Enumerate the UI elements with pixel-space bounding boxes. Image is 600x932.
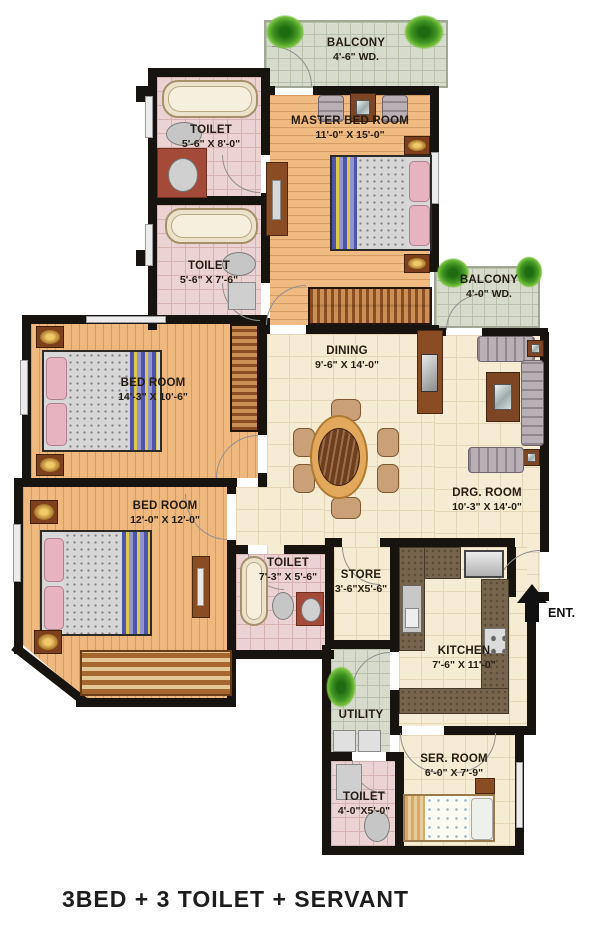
dining-table-top bbox=[318, 428, 360, 486]
dresser-mirror bbox=[272, 180, 281, 220]
nightstand bbox=[34, 630, 62, 654]
room-dims: 7'-3" X 5'-6" bbox=[246, 571, 330, 585]
room-dims: 3'-6"X5'-6" bbox=[328, 583, 394, 597]
room-name: BED ROOM bbox=[60, 376, 246, 391]
nightstand bbox=[36, 454, 64, 476]
bed-pillow bbox=[44, 586, 64, 630]
room-dims: 10'-3" X 14'-0" bbox=[432, 501, 542, 515]
room-dims: 9'-6" X 14'-0" bbox=[267, 359, 427, 373]
room-dims: 14'-3" X 10'-6" bbox=[60, 391, 246, 405]
bed-quilt bbox=[425, 796, 469, 840]
room-name: MASTER BED ROOM bbox=[270, 114, 430, 129]
floor-plan: ENT. BALCONY 4'-6" WD. TOILET 5'-6" X 8'… bbox=[0, 0, 600, 932]
washing-machine bbox=[333, 730, 356, 752]
room-name: TOILET bbox=[246, 556, 330, 571]
room-name: UTILITY bbox=[326, 708, 396, 723]
kitchen-counter bbox=[399, 688, 509, 714]
label-utility: UTILITY bbox=[326, 708, 396, 723]
room-dims: 4'-0"X5'-0" bbox=[326, 805, 402, 819]
window bbox=[13, 524, 21, 582]
room-dims: 12'-0" X 12'-0" bbox=[70, 514, 260, 528]
wall-segment bbox=[380, 538, 515, 547]
label-bedroom-bottom: BED ROOM 12'-0" X 12'-0" bbox=[70, 499, 260, 528]
label-kitchen: KITCHEN 7'-6" X 11'-0" bbox=[399, 644, 529, 673]
room-name: SER. ROOM bbox=[402, 752, 506, 767]
nightstand bbox=[404, 254, 430, 273]
room-dims: 5'-6" X 7'-6" bbox=[157, 274, 261, 288]
entrance-arrow-icon bbox=[517, 584, 547, 603]
single-bed bbox=[403, 794, 495, 842]
bed-pillow bbox=[44, 538, 64, 582]
label-drawing-room: DRG. ROOM 10'-3" X 14'-0" bbox=[432, 486, 542, 515]
wall-segment bbox=[227, 650, 334, 659]
washing-machine bbox=[358, 730, 381, 752]
label-toilet-mid: TOILET 5'-6" X 7'-6" bbox=[157, 259, 261, 288]
room-dims: 4'-0" WD. bbox=[436, 288, 542, 302]
room-dims: 5'-6" X 8'-0" bbox=[157, 138, 265, 152]
label-toilet-master: TOILET 5'-6" X 8'-0" bbox=[157, 123, 265, 152]
label-balcony-top: BALCONY 4'-6" WD. bbox=[280, 36, 432, 65]
room-name: BED ROOM bbox=[70, 499, 260, 514]
label-balcony-right: BALCONY 4'-0" WD. bbox=[436, 273, 542, 302]
label-toilet-common: TOILET 7'-3" X 5'-6" bbox=[246, 556, 330, 585]
wall-segment bbox=[325, 640, 399, 649]
wall-segment bbox=[313, 86, 439, 95]
room-name: KITCHEN bbox=[399, 644, 529, 659]
label-dining: DINING 9'-6" X 14'-0" bbox=[267, 344, 427, 373]
room-dims: 7'-6" X 11'-0" bbox=[399, 659, 529, 673]
wall-segment bbox=[227, 478, 236, 494]
wall-segment bbox=[148, 68, 270, 77]
dining-chair bbox=[331, 497, 361, 519]
bathtub bbox=[165, 208, 258, 244]
double-bed bbox=[40, 530, 152, 636]
room-name: STORE bbox=[328, 568, 394, 583]
dining-chair bbox=[377, 428, 399, 457]
bed-mattress bbox=[357, 157, 407, 249]
fridge bbox=[464, 550, 504, 578]
bed-pillow bbox=[471, 798, 493, 840]
label-bedroom-mid: BED ROOM 14'-3" X 10'-6" bbox=[60, 376, 246, 405]
window bbox=[516, 762, 523, 828]
label-toilet-servant: TOILET 4'-0"X5'-0" bbox=[326, 790, 402, 819]
wall-segment bbox=[227, 545, 248, 554]
wall-segment bbox=[258, 315, 267, 435]
window bbox=[145, 96, 153, 138]
bed-pillow bbox=[409, 161, 430, 202]
room-dims: 11'-0" X 15'-0" bbox=[270, 129, 430, 143]
sofa bbox=[521, 360, 544, 446]
bed-throw bbox=[332, 157, 357, 249]
window bbox=[431, 152, 439, 204]
window bbox=[20, 360, 28, 415]
room-name: TOILET bbox=[157, 259, 261, 274]
room-name: DINING bbox=[267, 344, 427, 359]
wall-segment bbox=[76, 698, 236, 707]
bed-mattress bbox=[64, 532, 122, 634]
dining-chair bbox=[377, 464, 399, 493]
sink bbox=[168, 158, 198, 192]
toilet-wc bbox=[272, 592, 294, 620]
label-servant-room: SER. ROOM 6'-0" X 7'-9" bbox=[402, 752, 506, 781]
sofa bbox=[468, 447, 524, 473]
wall-segment bbox=[322, 846, 524, 855]
room-name: TOILET bbox=[326, 790, 402, 805]
room-name: BALCONY bbox=[436, 273, 542, 288]
label-store: STORE 3'-6"X5'-6" bbox=[328, 568, 394, 597]
plan-title: 3BED + 3 TOILET + SERVANT bbox=[62, 886, 409, 913]
side-table-inlay bbox=[197, 568, 204, 606]
entrance-arrow-stem bbox=[525, 602, 539, 622]
bed-throw bbox=[122, 532, 150, 634]
room-name: BALCONY bbox=[280, 36, 432, 51]
nightstand bbox=[30, 500, 58, 524]
wall-segment bbox=[482, 328, 548, 336]
window bbox=[145, 224, 153, 266]
bathtub bbox=[162, 80, 258, 118]
kitchen-sink-bowl bbox=[405, 608, 419, 628]
bed-pillow bbox=[46, 403, 67, 446]
entrance-label: ENT. bbox=[548, 606, 575, 620]
wardrobe bbox=[308, 287, 432, 325]
room-dims: 6'-0" X 7'-9" bbox=[402, 767, 506, 781]
coffee-table bbox=[486, 372, 520, 422]
double-bed bbox=[330, 155, 432, 251]
corner-table bbox=[527, 340, 544, 357]
wall-segment bbox=[14, 478, 237, 487]
wall-segment bbox=[322, 752, 352, 761]
corner-table bbox=[523, 449, 540, 466]
room-dims: 4'-6" WD. bbox=[280, 51, 432, 65]
label-master-bedroom: MASTER BED ROOM 11'-0" X 15'-0" bbox=[270, 114, 430, 143]
nightstand bbox=[36, 326, 64, 348]
window bbox=[86, 316, 166, 323]
bed-pillow bbox=[409, 205, 430, 246]
wall-segment bbox=[258, 473, 267, 487]
bed-foot-strip bbox=[405, 796, 425, 840]
rug bbox=[80, 650, 232, 696]
room-name: DRG. ROOM bbox=[432, 486, 542, 501]
sink bbox=[301, 598, 321, 622]
wall-segment bbox=[261, 86, 275, 95]
room-name: TOILET bbox=[157, 123, 265, 138]
wall-segment bbox=[390, 547, 399, 652]
